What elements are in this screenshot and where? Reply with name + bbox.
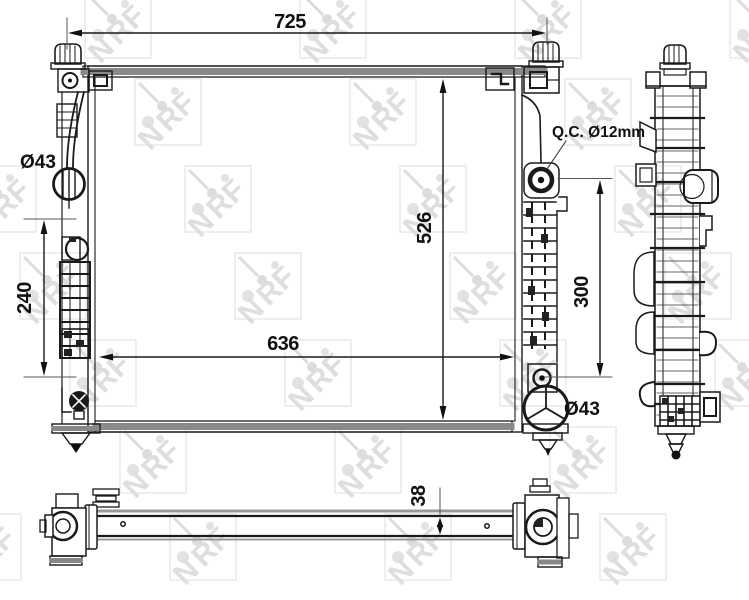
- bottom-header-strip: [95, 421, 512, 432]
- arrow-up-icon: [597, 180, 604, 194]
- dim-label-overall-height: 526: [414, 212, 436, 244]
- dim-label-overall-width: 725: [274, 11, 306, 33]
- dim-overall-height: 526: [414, 79, 446, 420]
- bottom-foot-left: [52, 424, 100, 453]
- dim-core-width: 636: [99, 333, 514, 360]
- lower-block: [660, 396, 700, 426]
- side-connector: [700, 392, 720, 422]
- mounting-pin-bottom: [658, 426, 694, 460]
- arrow-left-icon: [68, 30, 82, 37]
- dim-label-left-span: 240: [14, 282, 36, 314]
- right-tank-ribs: [524, 202, 556, 348]
- technical-drawing-page: N R F: [0, 0, 749, 600]
- inlet-port: [54, 169, 85, 209]
- inlet-diameter-label: Ø43: [20, 152, 56, 173]
- arrow-down-icon: [440, 406, 447, 420]
- dim-label-thickness: 38: [408, 485, 430, 507]
- arrow-up-icon: [41, 220, 48, 234]
- radiator-drawing: N R F: [0, 0, 749, 600]
- bottom-left-fitting: [40, 489, 119, 565]
- quick-connector-label: Q.C. Ø12mm: [552, 124, 645, 141]
- mounting-pin-left: [51, 44, 85, 69]
- arrow-down-icon: [597, 363, 604, 377]
- sensor-port: [62, 237, 88, 260]
- outlet-diameter-label: Ø43: [564, 399, 600, 420]
- side-view: [634, 45, 720, 460]
- quick-connector-callout: Q.C. Ø12mm: [547, 124, 645, 169]
- dim-label-right-span: 300: [571, 276, 593, 308]
- side-view-fins: [651, 96, 704, 415]
- dim-label-core-width: 636: [267, 333, 299, 355]
- dim-right-span: 300: [545, 179, 612, 378]
- arrow-down-icon: [41, 362, 48, 376]
- top-header-strip: [83, 66, 545, 77]
- quick-connector-boss: [524, 163, 559, 198]
- bottom-bar: [95, 511, 517, 540]
- mounting-pin-top: [660, 45, 690, 75]
- arrow-up-icon: [440, 79, 447, 93]
- hose-stub: [680, 170, 718, 203]
- arrow-right-icon: [500, 354, 514, 361]
